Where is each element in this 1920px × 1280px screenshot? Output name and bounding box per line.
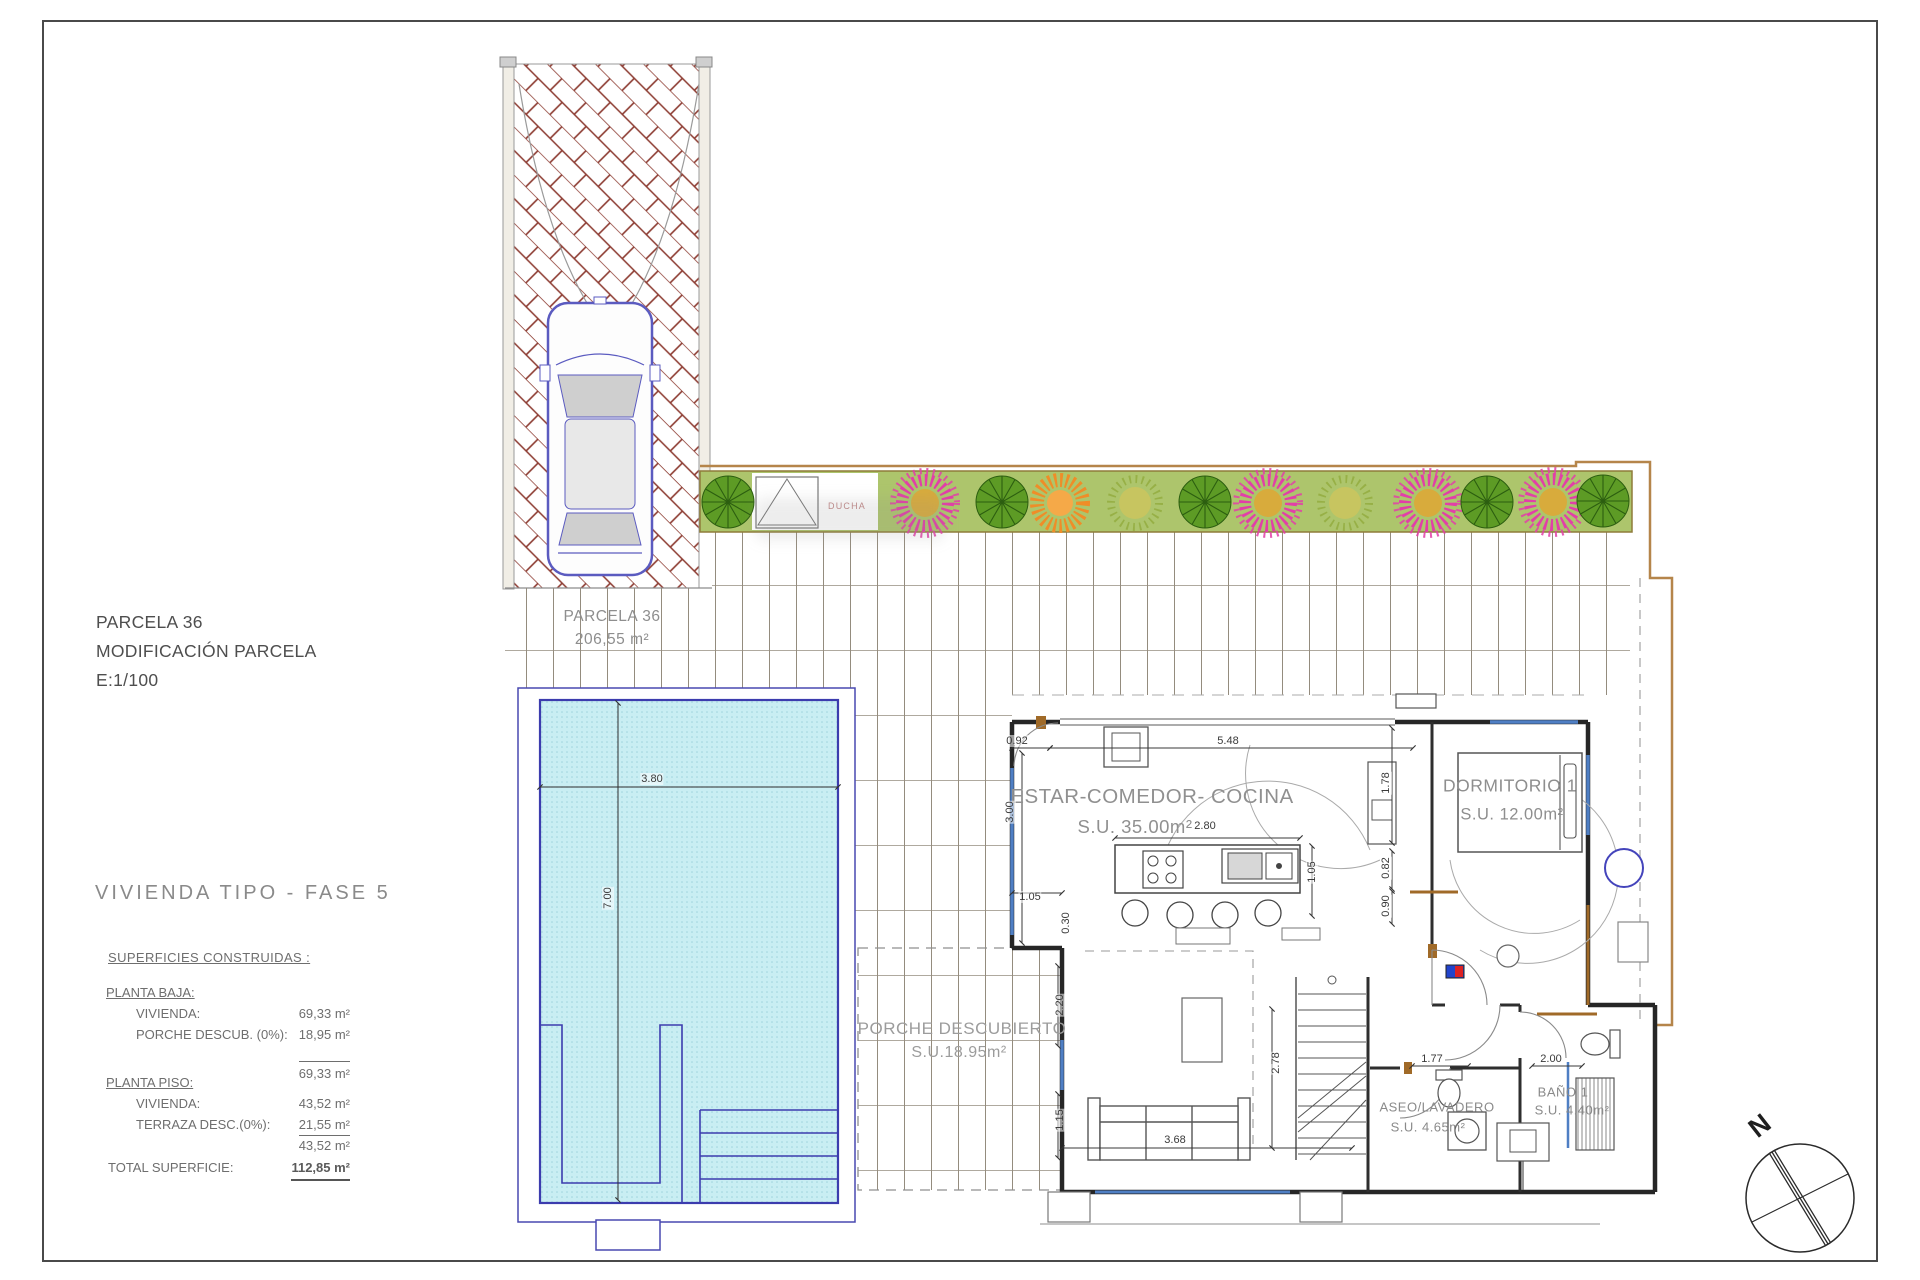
bed (1458, 753, 1582, 852)
dimension-label: 1.77 (1420, 1053, 1443, 1065)
dimension-label: 1.05 (1018, 891, 1041, 903)
dimension-label: 2.00 (1539, 1053, 1562, 1065)
washbasin (1497, 945, 1519, 967)
ac-unit (1618, 922, 1648, 962)
table-row: TERRAZA DESC.(0%): 21,55 m² (108, 1114, 350, 1135)
drawing-info-block: PARCELA 36 MODIFICACIÓN PARCELA E:1/100 (96, 608, 317, 695)
table-row: PORCHE DESCUB. (0%): 18,95 m² (108, 1024, 350, 1045)
dimension-label: 3.00 (1004, 800, 1016, 823)
areas-table: SUPERFICIES CONSTRUIDAS : PLANTA BAJA: V… (108, 950, 350, 1179)
dimension-label: 0.90 (1380, 894, 1392, 917)
car-icon (540, 297, 660, 575)
areas-heading: SUPERFICIES CONSTRUIDAS : (108, 950, 350, 965)
dimension-label: 2.80 (1193, 820, 1216, 832)
room-label-aseo: ASEO/LAVADERO (1379, 1100, 1494, 1115)
dimension-label: 1.15 (1054, 1108, 1066, 1131)
dimension-label: 0.30 (1060, 911, 1072, 934)
room-area-bath: S.U. 4.40m² (1535, 1103, 1610, 1118)
planter (1605, 849, 1643, 887)
porch-column-base (1300, 1192, 1342, 1222)
dimension-label: 0.92 (1005, 735, 1028, 747)
table-row: VIVIENDA: 43,52 m² (108, 1093, 350, 1114)
parcel-label-name: PARCELA 36 (564, 608, 661, 626)
ducha-label: DUCHA (828, 501, 866, 511)
drawing-scale: E:1/100 (96, 666, 317, 695)
cooktop (1143, 851, 1183, 888)
room-area-living: S.U. 35.00m² (1078, 816, 1193, 838)
dimension-label: 0.82 (1380, 856, 1392, 879)
dimension-label: 3.68 (1163, 1134, 1186, 1146)
table-row-total: TOTAL SUPERFICIE: 112,85 m² (108, 1157, 350, 1179)
parcel-title: PARCELA 36 (96, 608, 317, 637)
sheet-title: VIVIENDA TIPO - FASE 5 (95, 882, 391, 905)
side-table (1176, 928, 1230, 944)
parcel-label-area: 206,55 m² (575, 631, 649, 649)
dimension-label: 2.78 (1270, 1051, 1282, 1074)
porch-column-base (1048, 1192, 1090, 1222)
table-row: VIVIENDA: 69,33 m² (108, 1003, 350, 1024)
bath-sink (1497, 1123, 1549, 1161)
toilet-bath (1581, 1033, 1609, 1055)
dimension-label: 1.05 (1306, 860, 1318, 883)
room-area-bedroom: S.U. 12.00m² (1460, 806, 1563, 825)
dimension-label: 5.48 (1216, 735, 1239, 747)
compass-icon (1746, 1144, 1854, 1252)
parcel-modification: MODIFICACIÓN PARCELA (96, 637, 317, 666)
swimming-pool (518, 688, 855, 1250)
dimension-label: 2.20 (1054, 993, 1066, 1016)
dimension-label: 7.00 (602, 886, 614, 909)
pool-skimmer (596, 1220, 660, 1250)
room-area-porch: S.U.18.95m² (911, 1044, 1006, 1062)
side-table-2 (1282, 928, 1320, 940)
tv-cabinet (1182, 998, 1222, 1062)
room-area-aseo: S.U. 4.65m² (1391, 1120, 1466, 1135)
dimension-label: 3.80 (640, 773, 663, 785)
sofa (1088, 1098, 1250, 1160)
room-label-porch: PORCHE DESCUBIERTO (858, 1019, 1067, 1039)
planta-baja-heading: PLANTA BAJA: (106, 985, 350, 1000)
dimension-label: 1.78 (1380, 771, 1392, 794)
north-needle (1769, 1151, 1830, 1246)
room-label-living: ESTAR-COMEDOR- COCINA (1010, 785, 1293, 809)
fridge (1396, 694, 1436, 708)
room-label-bedroom: DORMITORIO 1 (1443, 776, 1577, 797)
room-label-bath: BAÑO 1 (1538, 1085, 1589, 1100)
